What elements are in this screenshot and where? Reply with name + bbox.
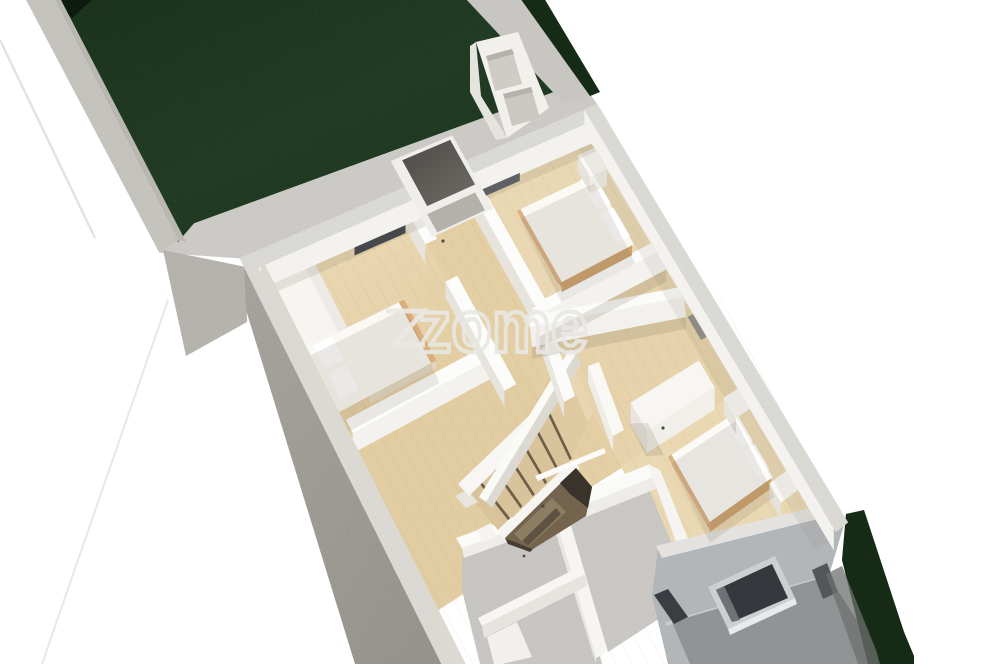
svg-text:zome: zome bbox=[418, 285, 588, 368]
